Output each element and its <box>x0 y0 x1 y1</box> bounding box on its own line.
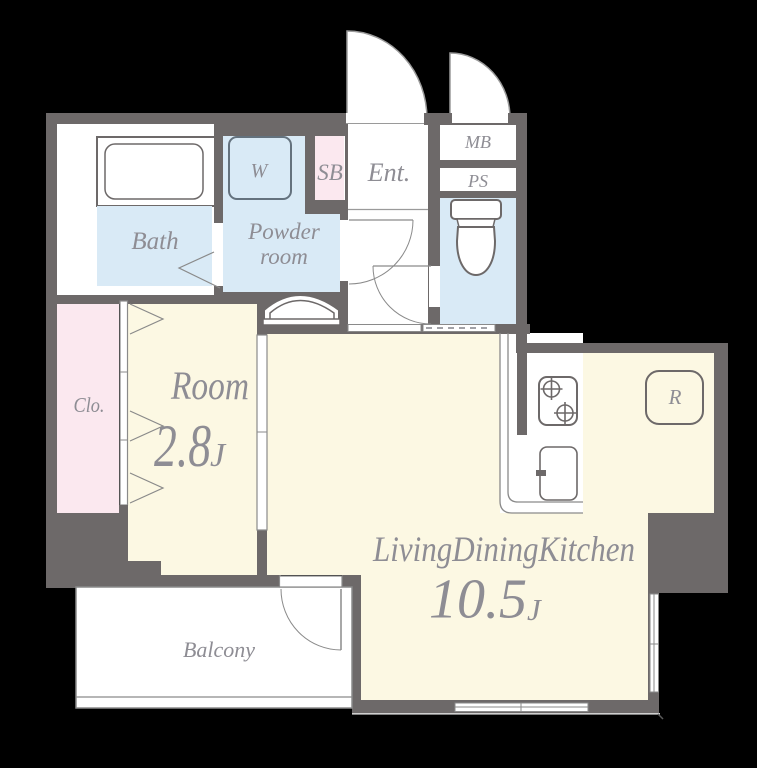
svg-text:J: J <box>527 592 542 627</box>
svg-text:Balcony: Balcony <box>183 637 255 662</box>
svg-text:W: W <box>251 160 270 182</box>
svg-text:Ent.: Ent. <box>367 158 411 187</box>
svg-text:R: R <box>668 385 682 409</box>
svg-text:SB: SB <box>317 160 343 185</box>
svg-text:10.5: 10.5 <box>429 569 527 631</box>
svg-text:Clo.: Clo. <box>74 393 105 417</box>
svg-text:PS: PS <box>467 171 488 191</box>
svg-text:2.8: 2.8 <box>154 413 211 479</box>
svg-text:LivingDiningKitchen: LivingDiningKitchen <box>372 529 635 569</box>
svg-text:MB: MB <box>464 132 491 152</box>
svg-text:Powder: Powder <box>247 219 321 244</box>
svg-text:room: room <box>260 244 308 269</box>
svg-text:Bath: Bath <box>131 228 178 255</box>
svg-text:J: J <box>210 437 227 474</box>
svg-text:Room: Room <box>170 363 249 408</box>
